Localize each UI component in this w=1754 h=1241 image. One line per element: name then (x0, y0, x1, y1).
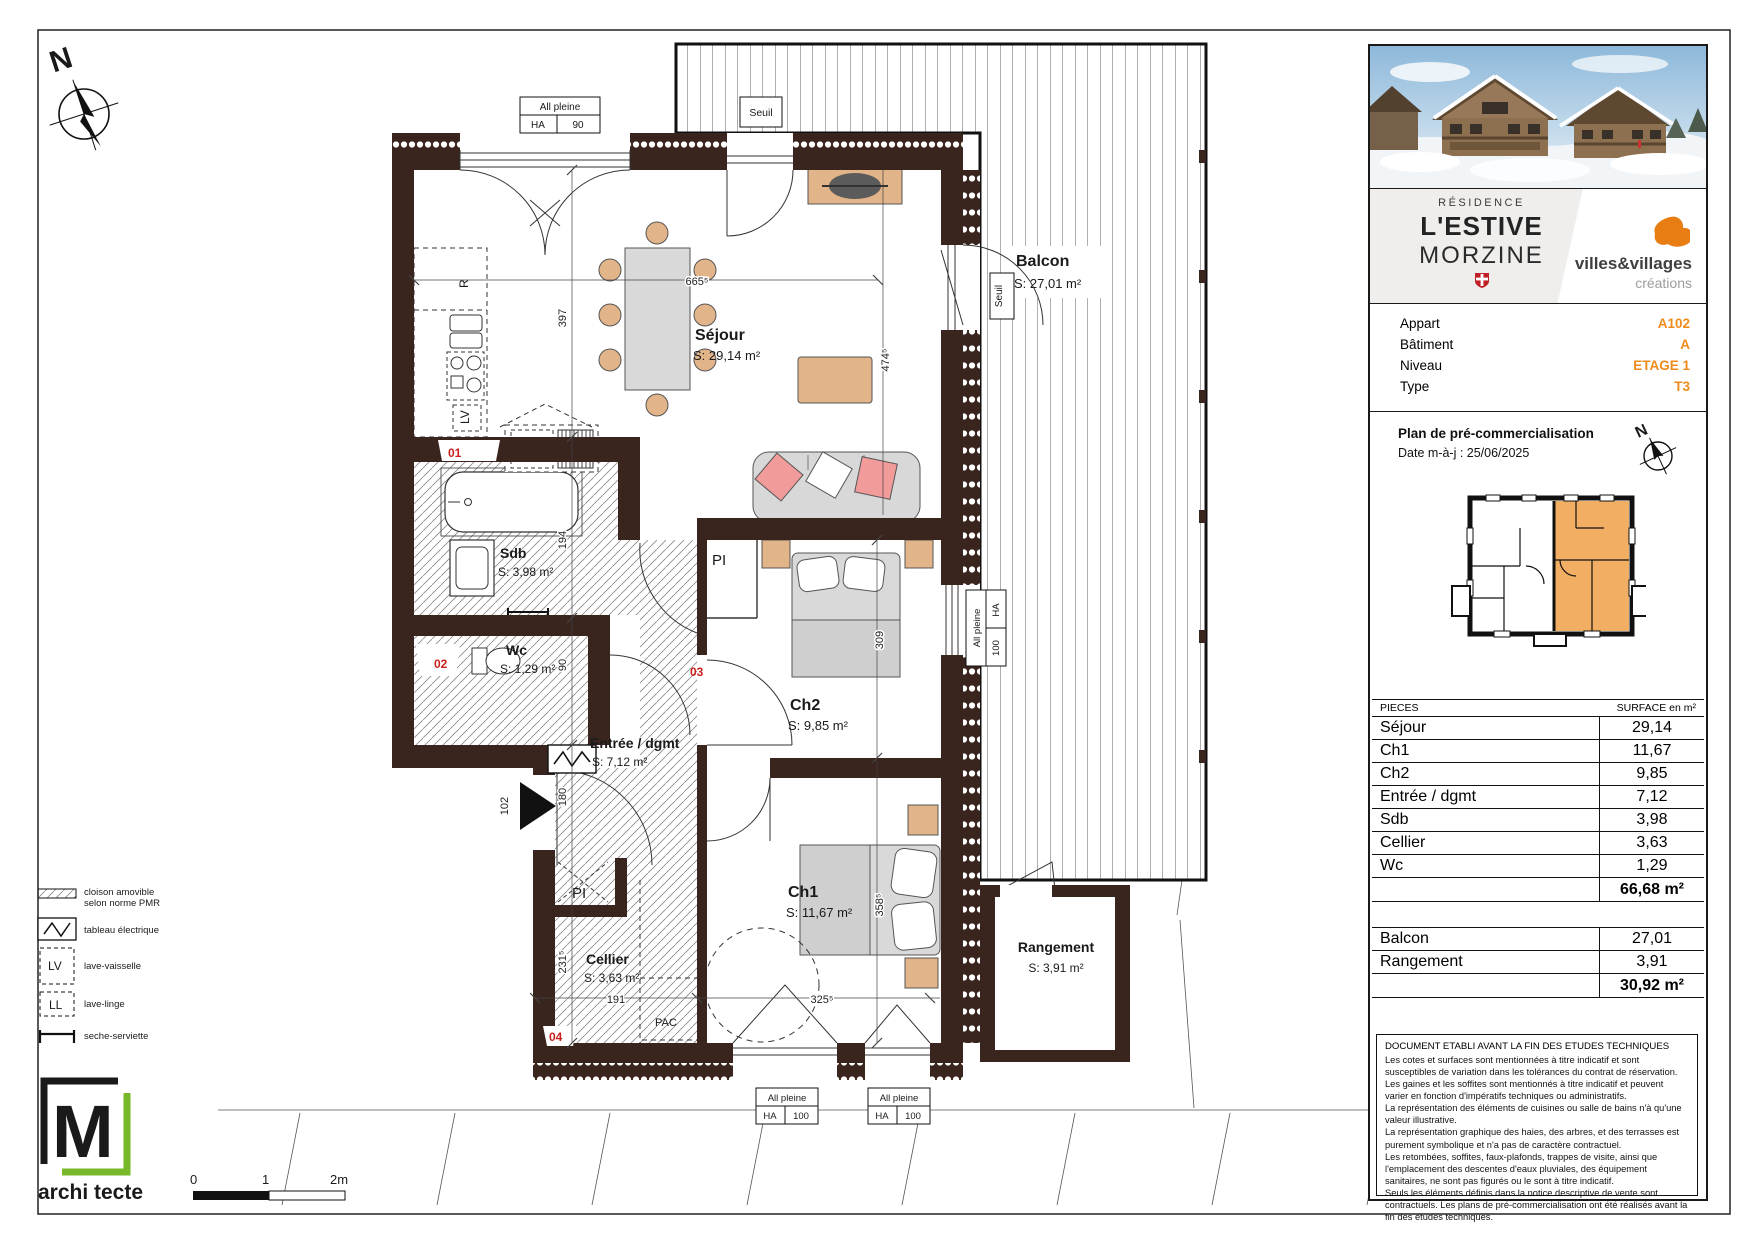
svg-text:archi: archi (38, 1181, 88, 1204)
svg-text:665⁵: 665⁵ (686, 276, 709, 288)
title-block: RÉSIDENCE L'ESTIVE MORZINE villes&villag… (1368, 44, 1708, 1201)
brand-residence: RÉSIDENCE (1394, 197, 1569, 209)
table-row: Wc1,29 (1372, 855, 1704, 878)
svg-text:S: 29,14 m²: S: 29,14 m² (693, 348, 761, 363)
dishwasher-label: LV (458, 410, 472, 424)
svg-text:lave-vaisselle: lave-vaisselle (84, 961, 141, 972)
table-row: Ch29,85 (1372, 763, 1704, 786)
info-label: Bâtiment (1400, 337, 1453, 358)
row-label: Entrée / dgmt (1372, 786, 1600, 808)
svg-text:All pleine: All pleine (768, 1093, 807, 1104)
annex-table: Balcon27,01 Rangement3,91 30,92 m² (1372, 927, 1704, 998)
plan-section-title: Plan de pré-commercialisation (1398, 426, 1594, 441)
legal-paragraph: Les retombées, soffites, faux-plafonds, … (1385, 1151, 1689, 1187)
mini-plan (1450, 488, 1646, 655)
svg-text:Seuil: Seuil (994, 285, 1005, 307)
allpleine-bottom-1: All pleine HA 100 (756, 1088, 818, 1124)
scale-bar: 0 1 2m (190, 1172, 348, 1200)
row-label: Wc (1372, 855, 1600, 877)
svg-text:2m: 2m (330, 1172, 348, 1187)
svg-text:M: M (52, 1090, 114, 1173)
allpleine-east: All pleine HA 100 (966, 590, 1006, 666)
svg-text:HA: HA (531, 120, 545, 131)
svg-text:397: 397 (557, 309, 569, 327)
table-row: Séjour29,14 (1372, 717, 1704, 740)
annex-total: 30,92 m² (1600, 974, 1704, 997)
svg-text:90: 90 (572, 120, 584, 131)
surface-total-row: 66,68 m² (1372, 878, 1704, 901)
villes-villages-logo: villes&villages créations (1575, 215, 1692, 291)
svg-text:100: 100 (905, 1111, 921, 1122)
table-row: Ch111,67 (1372, 740, 1704, 763)
row-value: 3,98 (1600, 809, 1704, 831)
svg-text:1: 1 (262, 1172, 269, 1187)
table-row: Sdb3,98 (1372, 809, 1704, 832)
company-sub: créations (1575, 275, 1692, 291)
info-value: A (1680, 337, 1690, 358)
svg-text:selon norme PMR: selon norme PMR (84, 898, 160, 909)
rangement-box: Rangement S: 3,91 m² (980, 885, 1130, 1062)
info-row-type: Type T3 (1370, 379, 1706, 400)
legend: cloison amovible selon norme PMR tableau… (38, 887, 160, 1043)
svg-text:Cellier: Cellier (586, 951, 629, 967)
svg-text:lave-linge: lave-linge (84, 999, 125, 1010)
svg-text:180: 180 (557, 788, 569, 806)
row-label: Ch1 (1372, 740, 1600, 762)
row-value: 9,85 (1600, 763, 1704, 785)
allpleine-bottom-2: All pleine HA 100 (868, 1088, 930, 1124)
svg-text:HA: HA (991, 603, 1002, 617)
surface-total: 66,68 m² (1600, 878, 1704, 901)
room-area-balcon: S: 27,01 m² (1014, 276, 1082, 291)
svg-text:PAC: PAC (655, 1017, 677, 1029)
svg-text:191: 191 (607, 994, 625, 1006)
row-value: 3,63 (1600, 832, 1704, 854)
svg-text:02: 02 (434, 657, 448, 671)
svg-text:100: 100 (793, 1111, 809, 1122)
svg-text:S: 1,29 m²: S: 1,29 m² (500, 662, 555, 676)
svg-text:N: N (1633, 421, 1651, 441)
svg-text:309: 309 (874, 631, 886, 649)
svg-text:tableau électrique: tableau électrique (84, 925, 159, 936)
legal-paragraph: Seuls les éléments définis dans la notic… (1385, 1187, 1689, 1223)
residence-photo (1370, 46, 1706, 189)
info-value: ETAGE 1 (1633, 358, 1690, 379)
villes-villages-blob-icon (1650, 215, 1690, 249)
row-value: 27,01 (1600, 928, 1704, 950)
room-label-balcon: Balcon (1016, 253, 1069, 270)
svg-text:HA: HA (763, 1111, 777, 1122)
svg-text:04: 04 (549, 1030, 563, 1044)
brand-name: L'ESTIVE (1394, 211, 1569, 242)
row-label: Sdb (1372, 809, 1600, 831)
sofa (753, 452, 920, 522)
table-row: Balcon27,01 (1372, 928, 1704, 951)
svg-text:cloison amovible: cloison amovible (84, 887, 154, 898)
svg-text:tecte: tecte (94, 1181, 143, 1204)
table-row: Entrée / dgmt7,12 (1372, 786, 1704, 809)
svg-text:S: 11,67 m²: S: 11,67 m² (786, 905, 853, 920)
bathroom-sink (450, 540, 494, 596)
legal-title: DOCUMENT ETABLI AVANT LA FIN DES ETUDES … (1385, 1041, 1689, 1052)
svg-text:Sdb: Sdb (500, 545, 526, 561)
svg-text:PI: PI (712, 552, 726, 569)
svg-text:All pleine: All pleine (540, 102, 581, 113)
svg-text:Ch1: Ch1 (788, 884, 818, 901)
svg-text:358⁵: 358⁵ (874, 894, 886, 917)
svg-text:474⁵: 474⁵ (880, 349, 892, 372)
annex-total-row: 30,92 m² (1372, 974, 1704, 997)
bathtub (441, 468, 582, 536)
svg-text:All pleine: All pleine (880, 1093, 919, 1104)
allpleine-top: All pleine HA 90 (520, 97, 600, 133)
legal-paragraph: Les cotes et surfaces sont mentionnées à… (1385, 1054, 1689, 1102)
row-label: Cellier (1372, 832, 1600, 854)
row-value: 1,29 (1600, 855, 1704, 877)
info-label: Niveau (1400, 358, 1442, 379)
row-value: 3,91 (1600, 951, 1704, 973)
svg-text:HA: HA (875, 1111, 889, 1122)
svg-text:Wc: Wc (506, 642, 527, 658)
legal-notice: DOCUMENT ETABLI AVANT LA FIN DES ETUDES … (1376, 1034, 1698, 1196)
info-value: T3 (1674, 379, 1690, 400)
legal-paragraph: La représentation des éléments de cuisin… (1385, 1102, 1689, 1126)
svg-text:Entrée / dgmt: Entrée / dgmt (590, 735, 680, 751)
table-row: Rangement3,91 (1372, 951, 1704, 974)
row-label: Balcon (1372, 928, 1600, 950)
architect-logo: M archi tecte (38, 1081, 143, 1204)
info-row-niveau: Niveau ETAGE 1 (1370, 358, 1706, 379)
svg-text:S: 9,85 m²: S: 9,85 m² (788, 718, 849, 733)
row-label: Séjour (1372, 717, 1600, 739)
compass-icon: N (39, 41, 130, 161)
svg-text:S: 3,98 m²: S: 3,98 m² (498, 565, 553, 579)
svg-text:LL: LL (49, 998, 63, 1012)
row-value: 7,12 (1600, 786, 1704, 808)
row-label: Ch2 (1372, 763, 1600, 785)
plan-section-date: Date m-à-j : 25/06/2025 (1398, 446, 1529, 460)
svg-text:S: 7,12 m²: S: 7,12 m² (592, 755, 647, 769)
surface-table: PIECES SURFACE en m² Séjour29,14 Ch111,6… (1372, 699, 1704, 902)
svg-text:All pleine: All pleine (972, 609, 983, 648)
svg-text:01: 01 (448, 446, 462, 460)
mini-compass-icon: N (1626, 420, 1684, 483)
room-area-rangement: S: 3,91 m² (1028, 961, 1083, 975)
row-label: Rangement (1372, 951, 1600, 973)
tv-console (808, 168, 902, 204)
info-label: Appart (1400, 316, 1440, 337)
row-value: 11,67 (1600, 740, 1704, 762)
svg-text:90: 90 (557, 659, 569, 671)
plan-sheet: N Balcon S: 27,01 m² (0, 0, 1754, 1241)
table-row: Cellier3,63 (1372, 832, 1704, 855)
svg-text:Seuil: Seuil (749, 107, 772, 119)
svg-text:seche-serviette: seche-serviette (84, 1031, 148, 1042)
company-name: villes&villages (1575, 254, 1692, 274)
brand-city: MORZINE (1394, 242, 1569, 270)
svg-text:S: 3,63 m²: S: 3,63 m² (584, 971, 639, 985)
row-value: 29,14 (1600, 717, 1704, 739)
header-surface: SURFACE en m² (1617, 702, 1696, 714)
svg-text:102: 102 (499, 797, 511, 815)
info-value: A102 (1658, 316, 1690, 337)
unit-info: Appart A102 Bâtiment A Niveau ETAGE 1 Ty… (1370, 304, 1706, 412)
info-row-batiment: Bâtiment A (1370, 337, 1706, 358)
svg-text:Ch2: Ch2 (790, 697, 820, 714)
svg-text:100: 100 (991, 640, 1002, 656)
legal-paragraph: La représentation graphique des haies, d… (1385, 1126, 1689, 1150)
room-label-rangement: Rangement (1018, 939, 1095, 955)
savoie-shield-icon (1474, 272, 1490, 289)
surface-table-header: PIECES SURFACE en m² (1372, 700, 1704, 717)
svg-text:325⁵: 325⁵ (811, 994, 834, 1006)
svg-text:LV: LV (48, 959, 62, 973)
plan-section: Plan de pré-commercialisation Date m-à-j… (1370, 412, 1706, 927)
coffee-table (798, 357, 872, 403)
svg-text:Séjour: Séjour (695, 327, 745, 344)
compass-n-label: N (46, 41, 77, 79)
svg-text:194: 194 (557, 531, 569, 549)
svg-text:PI: PI (572, 885, 586, 902)
header-pieces: PIECES (1380, 702, 1419, 714)
info-label: Type (1400, 379, 1429, 400)
brand-band: RÉSIDENCE L'ESTIVE MORZINE villes&villag… (1370, 189, 1706, 304)
svg-text:03: 03 (690, 665, 704, 679)
svg-text:231⁵: 231⁵ (557, 951, 569, 974)
info-row-appart: Appart A102 (1370, 316, 1706, 337)
svg-text:0: 0 (190, 1172, 197, 1187)
